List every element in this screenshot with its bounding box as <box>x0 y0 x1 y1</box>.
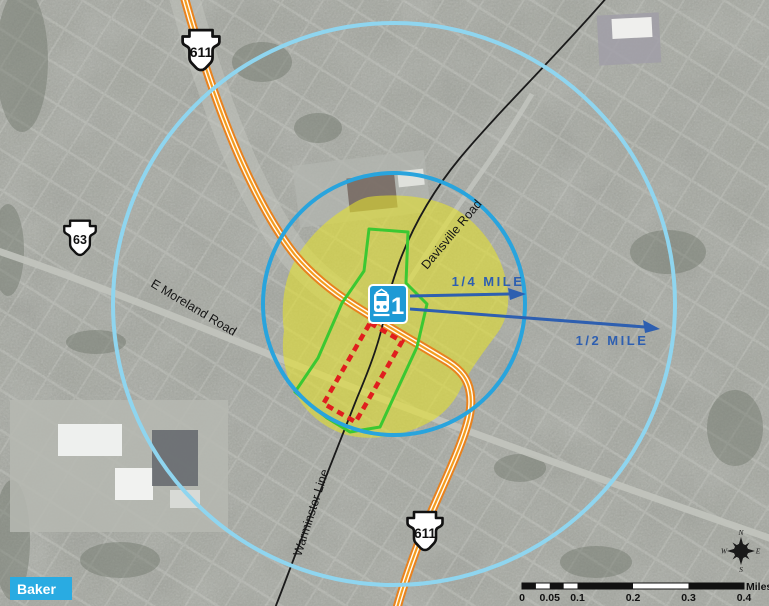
source-badge: Baker <box>10 577 72 600</box>
svg-text:W: W <box>721 547 728 556</box>
svg-text:63: 63 <box>73 233 87 247</box>
map-figure: 1/4 MILE 1/2 MILE E Moreland Road Davisv… <box>0 0 769 606</box>
scale-tick: 0.05 <box>540 592 561 604</box>
scale-tick: 0 <box>519 592 525 604</box>
svg-text:N: N <box>737 528 744 537</box>
scale-tick: 0.4 <box>737 592 752 604</box>
half-mile-label: 1/2 MILE <box>576 333 649 348</box>
scale-tick: 0.2 <box>626 592 641 604</box>
train-icon <box>374 290 390 316</box>
source-label: Baker <box>17 581 56 597</box>
scale-tick: 0.1 <box>570 592 585 604</box>
svg-text:611: 611 <box>414 526 436 541</box>
scale-tick: 0.3 <box>681 592 696 604</box>
scale-unit: Miles <box>746 581 769 593</box>
map-canvas: 1/4 MILE 1/2 MILE E Moreland Road Davisv… <box>0 0 769 606</box>
station-badge: 1 <box>391 293 404 320</box>
station-icon: 1 <box>369 285 407 323</box>
svg-text:S: S <box>739 565 743 574</box>
quarter-mile-label: 1/4 MILE <box>452 274 525 289</box>
svg-text:E: E <box>755 547 761 556</box>
svg-text:611: 611 <box>190 44 213 60</box>
